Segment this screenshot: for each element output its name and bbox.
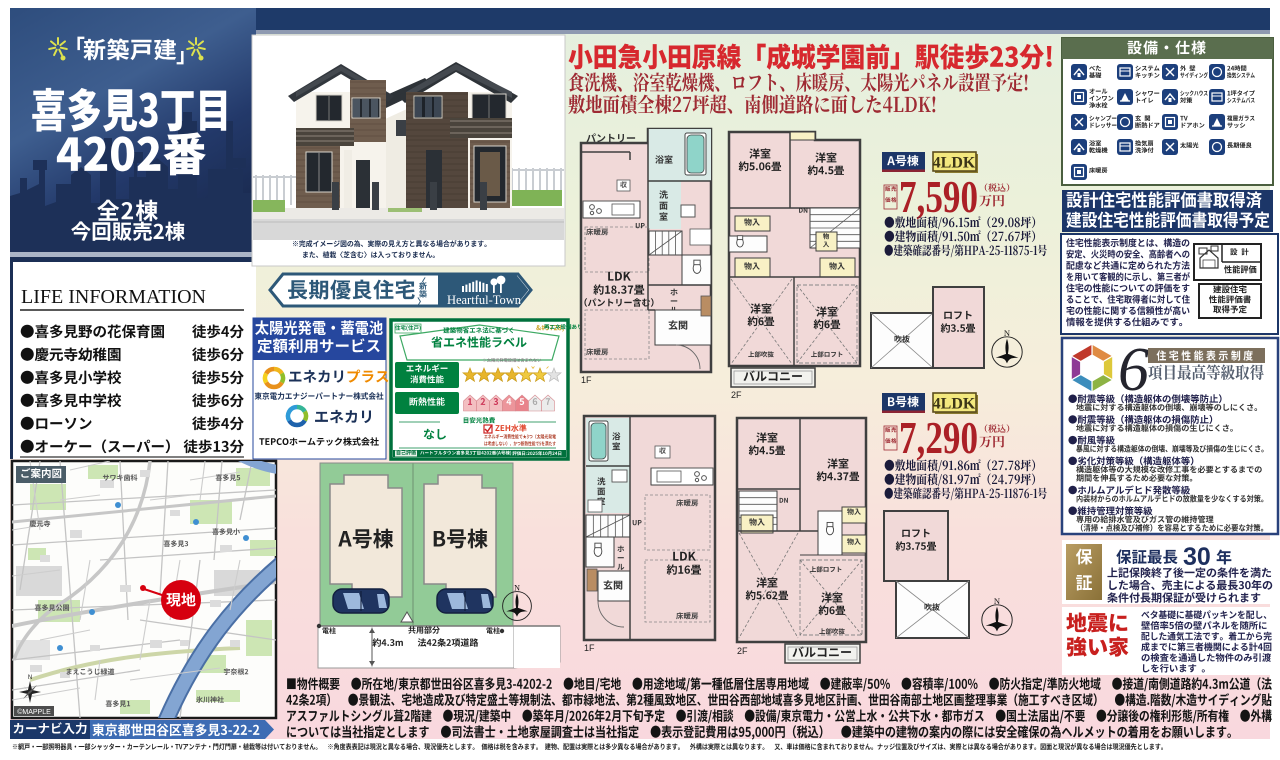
svg-text:6: 6 [1118, 336, 1149, 404]
svg-text:7,290: 7,290 [899, 412, 978, 463]
svg-text:30: 30 [1183, 543, 1211, 571]
svg-text:1F: 1F [581, 375, 592, 385]
svg-text:LIFE INFORMATION: LIFE INFORMATION [21, 286, 206, 308]
svg-text:N: N [514, 584, 520, 593]
svg-text:7,590: 7,590 [899, 171, 978, 222]
svg-text:Heartful-Town: Heartful-Town [447, 293, 522, 307]
svg-text:N: N [1004, 328, 1010, 338]
svg-text:2F: 2F [737, 646, 748, 656]
svg-text:2F: 2F [731, 390, 742, 400]
svg-text:1F: 1F [584, 643, 595, 653]
svg-text:©MAPPLE: ©MAPPLE [17, 708, 51, 716]
svg-text:N: N [994, 596, 1000, 606]
svg-text:4LDK: 4LDK [933, 396, 976, 413]
svg-text:4LDK: 4LDK [933, 155, 976, 172]
svg-text:N: N [28, 675, 32, 681]
